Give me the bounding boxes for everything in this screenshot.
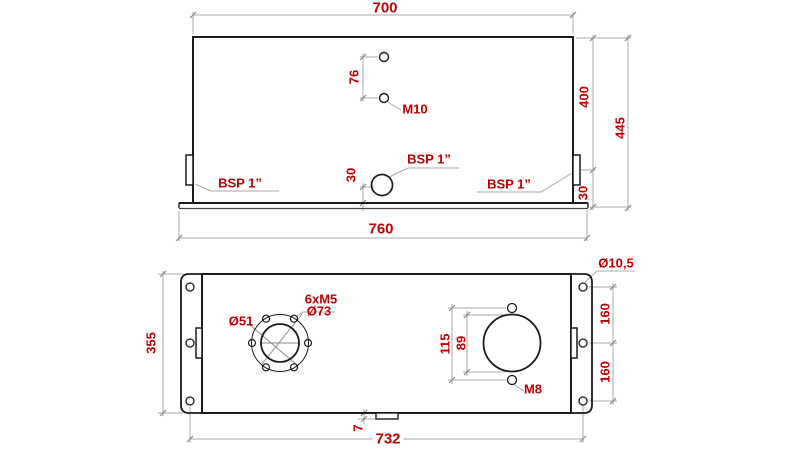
port-drain-bsp [372, 175, 393, 196]
plan-view-tank-outline [181, 274, 592, 419]
dim-hole-spacing: 76 [348, 70, 361, 84]
hole-m10-lower [380, 94, 389, 103]
dim-notch-depth: 7 [352, 424, 365, 431]
label-bsp-left: BSP 1” [218, 177, 262, 190]
dim-body-height: 400 [578, 86, 591, 108]
label-m8: M8 [524, 383, 542, 396]
label-m10: M10 [402, 103, 427, 116]
dim-filler-opening: 89 [455, 336, 468, 350]
dim-flange-lower: 160 [599, 361, 612, 383]
dim-mount-pitch: 732 [372, 432, 403, 447]
dim-port-offset: 30 [577, 186, 590, 200]
dim-flange-upper: 160 [599, 303, 612, 325]
technical-drawing-canvas: 700 76 M10 BSP 1” BSP 1” BSP 1” 30 400 3… [0, 0, 800, 450]
dim-filler-spacing: 115 [439, 334, 452, 355]
plan-drain-boss [376, 413, 398, 419]
dim-drain-offset: 30 [345, 168, 358, 182]
front-view-dim-ticks [176, 12, 631, 241]
plan-port-right [571, 328, 577, 358]
hole-m10-upper [380, 53, 389, 62]
drawing-geometry [0, 0, 800, 450]
port-right-bsp [573, 155, 580, 185]
label-bsp-right: BSP 1” [487, 178, 531, 191]
plan-port-left [196, 328, 202, 358]
label-bsp-drain: BSP 1” [407, 153, 451, 166]
label-suction-dia: Ø51 [229, 315, 254, 328]
port-left-bsp [186, 155, 193, 185]
label-mount-hole-dia: Ø10,5 [598, 257, 633, 270]
dim-top-width: 700 [372, 1, 397, 16]
front-view-dimensions [179, 12, 631, 241]
dim-total-height: 445 [614, 117, 627, 139]
leader-m8 [513, 384, 524, 391]
dim-base-width: 760 [368, 222, 393, 237]
label-bolt-circle: Ø73 [307, 305, 332, 318]
dim-depth: 355 [145, 332, 158, 354]
